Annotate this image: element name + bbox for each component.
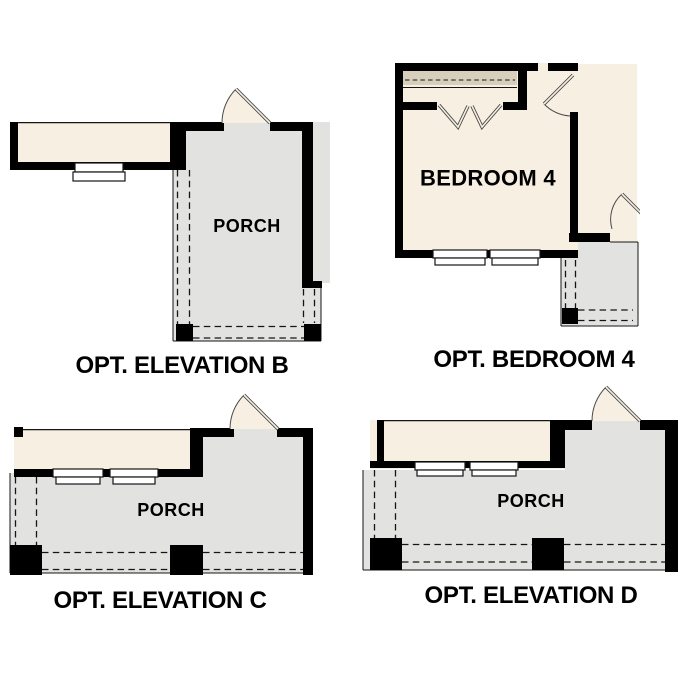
- figure-title-elevation-b: OPT. ELEVATION B: [32, 352, 332, 380]
- bedroom-4-plan: BEDROOM 4: [390, 55, 640, 335]
- window: [73, 163, 125, 181]
- porch-post: [562, 308, 578, 324]
- porch-label: PORCH: [213, 216, 281, 236]
- porch-post: [532, 538, 564, 570]
- window: [470, 462, 518, 476]
- porch-label: PORCH: [137, 500, 205, 520]
- window: [415, 462, 465, 476]
- porch-post: [10, 545, 42, 575]
- door-swing-icon: [230, 395, 278, 429]
- window: [490, 250, 540, 265]
- window: [53, 469, 103, 484]
- door-swing-icon: [592, 387, 640, 421]
- door-swing-icon: [222, 89, 270, 123]
- elevation-d-plan: PORCH: [358, 383, 680, 575]
- figure-title-bedroom-4: OPT. BEDROOM 4: [404, 346, 664, 374]
- floorplan-options-sheet: PORCH OPT. ELEVATION B: [0, 0, 687, 687]
- house-room-band: [370, 420, 565, 469]
- porch-label: PORCH: [497, 491, 565, 511]
- elevation-c-plan: PORCH: [5, 385, 320, 580]
- house-room-band: [14, 427, 203, 477]
- porch-post: [370, 538, 402, 570]
- window: [433, 250, 487, 265]
- figure-title-elevation-c: OPT. ELEVATION C: [10, 587, 310, 615]
- porch-post: [304, 324, 321, 341]
- window: [110, 469, 158, 484]
- figure-title-elevation-d: OPT. ELEVATION D: [381, 582, 681, 610]
- bedroom-floor: [403, 63, 578, 250]
- bedroom-4-label: BEDROOM 4: [420, 166, 556, 191]
- hall-floor: [578, 64, 637, 242]
- porch-post: [176, 324, 193, 341]
- elevation-b-plan: PORCH: [0, 55, 345, 350]
- porch-post: [170, 545, 203, 575]
